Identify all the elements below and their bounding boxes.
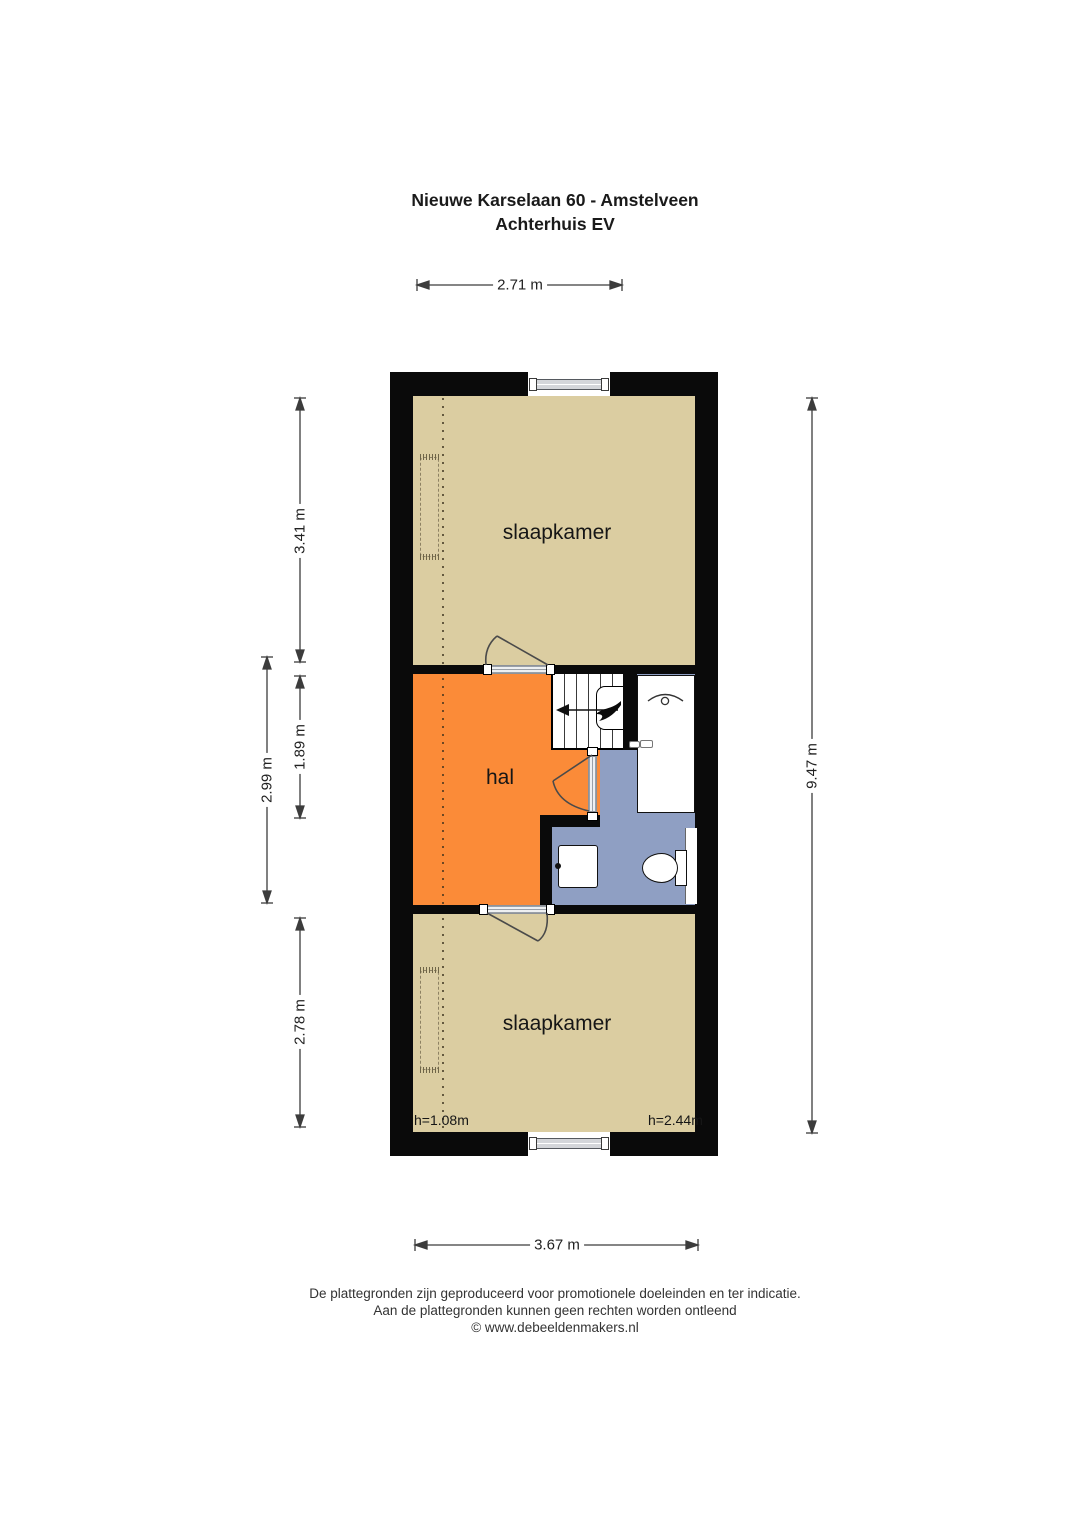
page-title: Nieuwe Karselaan 60 - Amstelveen Achterh… bbox=[15, 188, 1080, 236]
window-top-glass bbox=[536, 379, 602, 390]
door-top-jamb-left bbox=[483, 664, 492, 675]
wall-bottom-left bbox=[413, 905, 483, 914]
exterior-wall-right bbox=[695, 372, 718, 1156]
wall-bottom-right bbox=[551, 905, 695, 914]
washbasin bbox=[558, 845, 598, 888]
disclaimer-line1: De plattegronden zijn geproduceerd voor … bbox=[15, 1285, 1080, 1302]
radiator-hatch bbox=[420, 454, 439, 460]
washbasin-tap bbox=[555, 863, 561, 869]
window-bottom-cap-left bbox=[529, 1137, 537, 1150]
room-hal bbox=[413, 666, 553, 913]
wall-top-right bbox=[548, 665, 695, 674]
bathtub-tap-handle bbox=[640, 740, 653, 748]
dim-label-bottom: 3.67 m bbox=[530, 1237, 584, 1254]
door-top-threshold bbox=[490, 665, 548, 674]
dim-label-left-middle: 1.89 m bbox=[292, 720, 309, 774]
bathtub-tap bbox=[629, 741, 640, 748]
door-bathroom-leaf bbox=[588, 756, 597, 812]
door-top-jamb-right bbox=[546, 664, 555, 675]
wall-stairs-right bbox=[623, 671, 637, 750]
wall-top-left bbox=[413, 665, 490, 674]
radiator-bottom-room bbox=[420, 970, 439, 1070]
door-bottom-jamb-right bbox=[546, 904, 555, 915]
radiator-hatch bbox=[420, 1067, 439, 1073]
exterior-wall-left bbox=[390, 372, 413, 1156]
radiator-hatch bbox=[420, 554, 439, 560]
toilet-bowl bbox=[642, 853, 678, 883]
disclaimer: De plattegronden zijn geproduceerd voor … bbox=[15, 1285, 1080, 1336]
dim-label-left-top: 3.41 m bbox=[292, 504, 309, 558]
dim-label-left-outer: 2.99 m bbox=[259, 753, 276, 807]
label-slaapkamer-top: slaapkamer bbox=[503, 521, 612, 545]
door-bottom-jamb-left bbox=[479, 904, 488, 915]
label-hal: hal bbox=[486, 766, 514, 790]
door-bottom-threshold bbox=[487, 905, 547, 914]
window-bottom-glass bbox=[536, 1138, 602, 1149]
height-note-left: h=1.08m bbox=[414, 1112, 469, 1128]
radiator-top-room bbox=[420, 457, 439, 557]
window-top-cap-right bbox=[601, 378, 609, 391]
wall-bath-vertical bbox=[540, 815, 552, 907]
title-line2: Achterhuis EV bbox=[15, 212, 1080, 236]
title-line1: Nieuwe Karselaan 60 - Amstelveen bbox=[15, 188, 1080, 212]
radiator-hatch bbox=[420, 967, 439, 973]
stair-newel bbox=[596, 686, 624, 730]
dim-label-top: 2.71 m bbox=[493, 277, 547, 294]
disclaimer-line2: Aan de plattegronden kunnen geen rechten… bbox=[15, 1302, 1080, 1319]
door-bathroom-jamb-bottom bbox=[587, 812, 598, 821]
dim-label-left-bottom: 2.78 m bbox=[292, 995, 309, 1049]
window-bottom-cap-right bbox=[601, 1137, 609, 1150]
door-bathroom-jamb-top bbox=[587, 747, 598, 756]
dim-label-right: 9.47 m bbox=[804, 739, 821, 793]
floorplan-page: Nieuwe Karselaan 60 - Amstelveen Achterh… bbox=[0, 0, 1080, 1527]
ceiling-slope-dotted-line bbox=[442, 398, 444, 1133]
height-note-right: h=2.44m bbox=[648, 1112, 703, 1128]
label-slaapkamer-bottom: slaapkamer bbox=[503, 1012, 612, 1036]
disclaimer-line3: © www.debeeldenmakers.nl bbox=[15, 1319, 1080, 1336]
window-top-cap-left bbox=[529, 378, 537, 391]
